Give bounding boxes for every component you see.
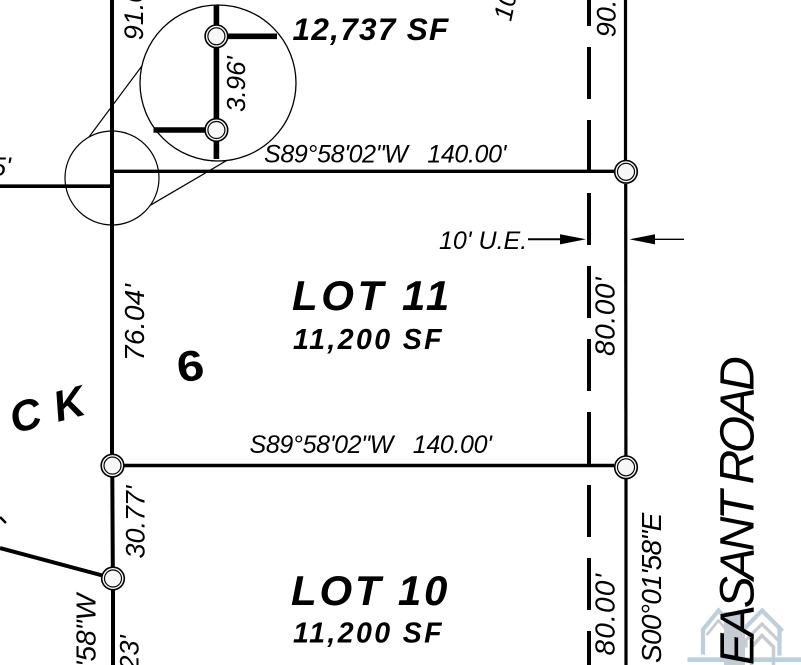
svg-text:90.96': 90.96' — [592, 0, 622, 37]
svg-text:76.04': 76.04' — [119, 282, 150, 361]
svg-text:5': 5' — [0, 152, 12, 182]
svg-text:80.00': 80.00' — [590, 276, 621, 356]
svg-text:S00°01'58"E: S00°01'58"E — [636, 512, 667, 663]
svg-text:10' U.E.: 10' U.E. — [439, 227, 527, 255]
svg-text:23': 23' — [115, 634, 145, 665]
svg-text:LOT 10: LOT 10 — [291, 567, 450, 614]
svg-text:S89°58'02"W 140.00': S89°58'02"W 140.00' — [264, 141, 508, 169]
svg-text:30.77': 30.77' — [121, 485, 151, 559]
svg-text:11,200 SF: 11,200 SF — [293, 618, 444, 650]
svg-text:11,200 SF: 11,200 SF — [293, 324, 444, 356]
svg-text:80.00': 80.00' — [590, 572, 621, 655]
svg-text:91.04': 91.04' — [119, 0, 149, 40]
svg-text:12,737 SF: 12,737 SF — [293, 11, 450, 47]
svg-text:S89°58'02"W 140.00': S89°58'02"W 140.00' — [250, 431, 494, 459]
svg-text:LOT 11: LOT 11 — [292, 272, 453, 319]
svg-text:3.96': 3.96' — [221, 55, 251, 112]
svg-text:S00°01'58"W: S00°01'58"W — [71, 591, 102, 665]
svg-text:PLEASANT ROAD: PLEASANT ROAD — [712, 357, 765, 665]
